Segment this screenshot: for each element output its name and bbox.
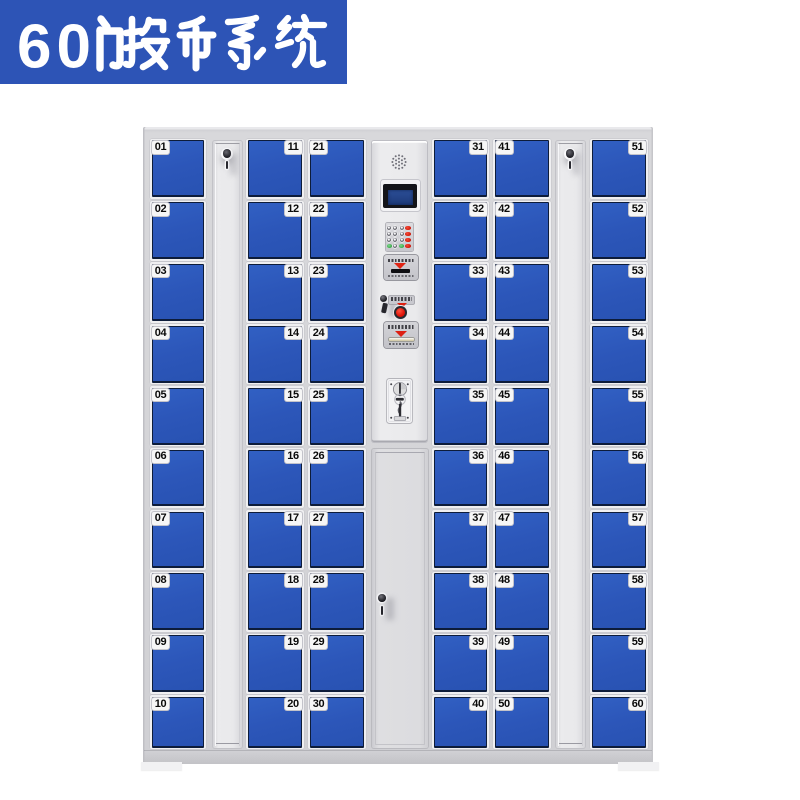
- svg-text:60: 60: [17, 13, 96, 79]
